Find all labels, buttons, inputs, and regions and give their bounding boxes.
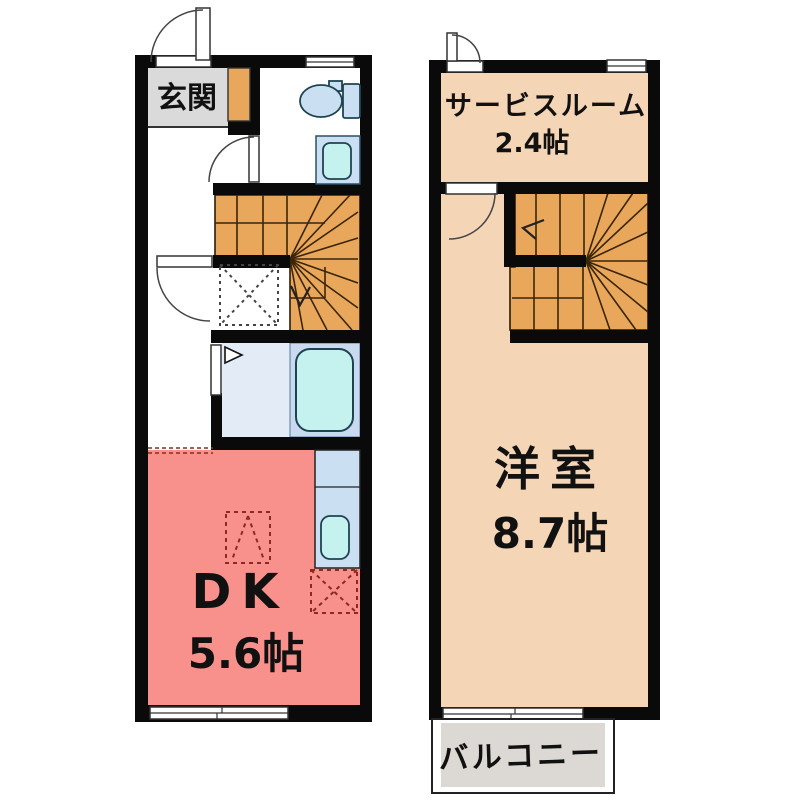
washing-machine-space <box>220 265 278 325</box>
service-room-size-label: 2.4帖 <box>495 128 570 159</box>
dk-window <box>150 707 288 719</box>
entrance-door <box>151 8 211 67</box>
dk-label: DK <box>191 564 288 620</box>
balcony: バルコニー <box>432 719 614 793</box>
toilet-window <box>306 57 354 67</box>
kitchen-sink <box>321 516 349 559</box>
shoe-cabinet <box>228 68 250 121</box>
toilet-fixture <box>300 81 360 118</box>
western-room-size-label: 8.7帖 <box>492 509 608 558</box>
balcony-label: バルコニー <box>438 736 604 777</box>
floorplan-drawing: 玄関 DK 5.6帖 <box>0 0 800 800</box>
service-room-window <box>607 60 646 72</box>
bathtub <box>296 349 353 431</box>
western-room-label: 洋室 <box>494 442 606 496</box>
floorplan-canvas: 玄関 DK 5.6帖 <box>0 0 800 800</box>
service-room-label: サービスルーム <box>445 91 647 122</box>
entrance-label: 玄関 <box>157 81 217 116</box>
kitchen-counter <box>315 450 360 568</box>
service-room-outer-door <box>447 33 483 72</box>
washbasin <box>316 136 360 184</box>
floor2-plan: バルコニー サービスルーム 2.4帖 洋室 8.7帖 <box>429 33 660 793</box>
toilet-door <box>209 136 259 182</box>
floor1-plan: 玄関 DK 5.6帖 <box>135 8 372 722</box>
dk-size-label: 5.6帖 <box>188 629 304 678</box>
hallway-door <box>157 256 212 321</box>
